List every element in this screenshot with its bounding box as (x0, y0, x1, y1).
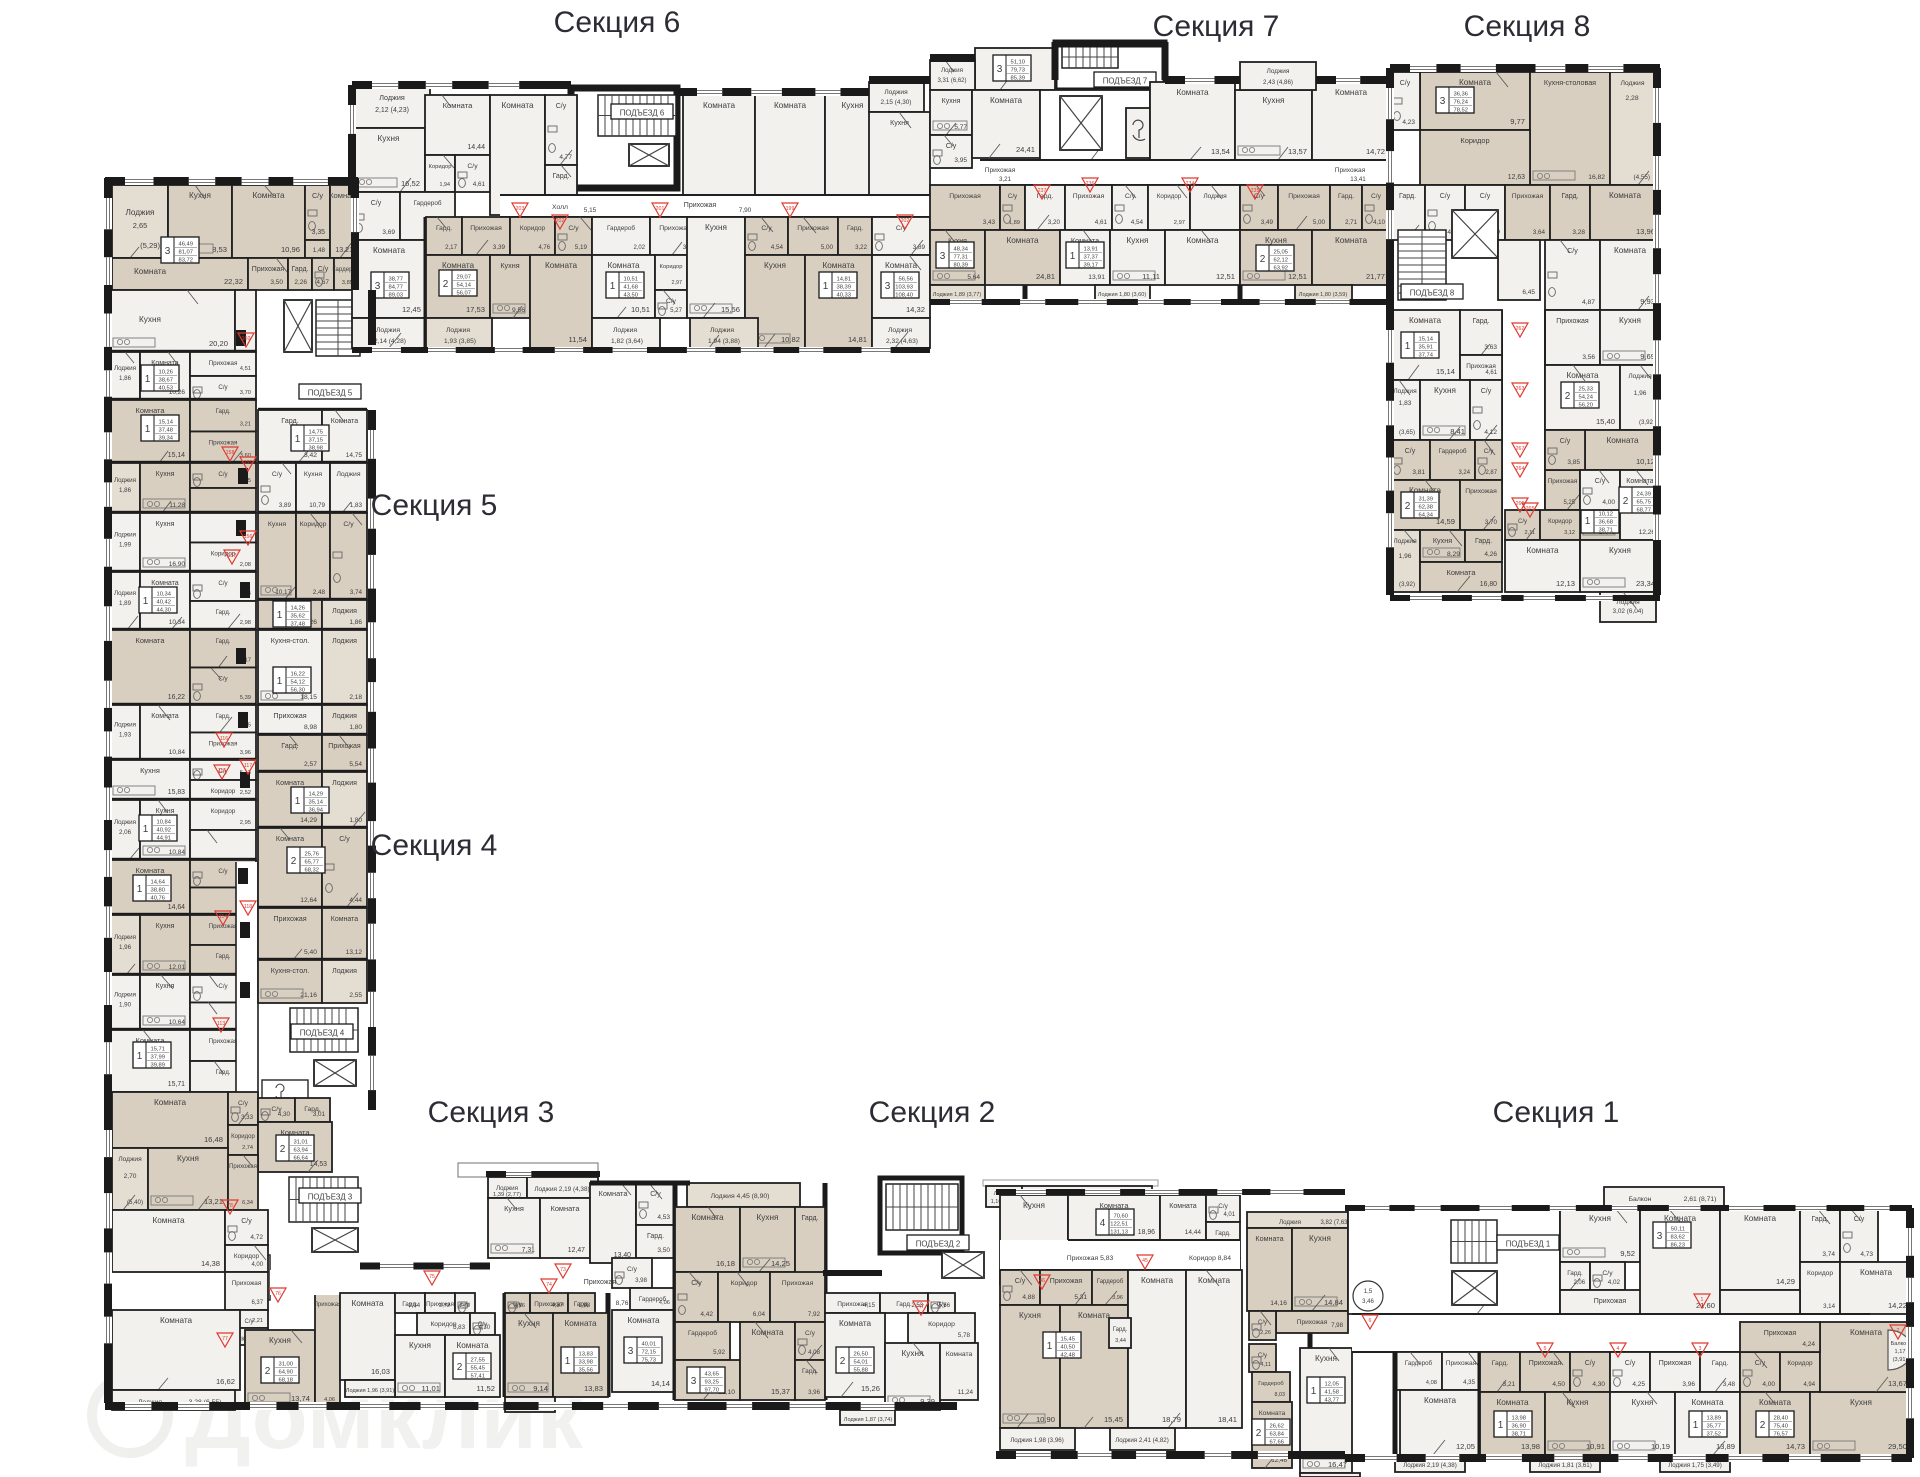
svg-text:76,57: 76,57 (1773, 1432, 1788, 1438)
svg-text:1: 1 (565, 1356, 571, 1367)
svg-text:Комната: Комната (1447, 568, 1477, 577)
svg-text:С/у: С/у (568, 225, 579, 232)
svg-text:Комната: Комната (990, 96, 1023, 105)
svg-text:24,39: 24,39 (1636, 492, 1651, 498)
svg-text:41,68: 41,68 (623, 285, 638, 291)
svg-text:13,91: 13,91 (1088, 274, 1105, 281)
svg-text:Прихожая: Прихожая (1764, 1330, 1797, 1337)
svg-text:56,56: 56,56 (898, 277, 913, 283)
svg-text:3,50: 3,50 (270, 279, 283, 286)
svg-text:16,48: 16,48 (204, 1135, 223, 1144)
svg-text:3: 3 (1699, 1346, 1702, 1352)
svg-text:С/у: С/у (666, 298, 677, 305)
svg-text:77,31: 77,31 (953, 255, 968, 261)
svg-text:Лоджия: Лоджия (376, 327, 400, 334)
svg-text:Прихожая: Прихожая (1556, 318, 1589, 325)
svg-text:Комната: Комната (599, 1189, 629, 1198)
svg-text:68,77: 68,77 (1636, 508, 1651, 514)
svg-text:40,92: 40,92 (156, 828, 171, 834)
svg-text:Коридор: Коридор (1807, 1270, 1833, 1277)
svg-text:89,03: 89,03 (388, 293, 403, 299)
svg-text:15,14: 15,14 (1436, 367, 1456, 376)
svg-text:3,39: 3,39 (493, 244, 506, 251)
svg-text:48,34: 48,34 (953, 247, 968, 253)
svg-text:Кухня: Кухня (764, 261, 786, 270)
svg-text:Комната: Комната (1614, 246, 1647, 255)
svg-text:47: 47 (918, 1304, 924, 1310)
svg-text:Гард.: Гард. (801, 1215, 818, 1222)
svg-text:(5,29): (5,29) (140, 241, 160, 250)
svg-text:Кухня: Кухня (156, 923, 175, 930)
svg-text:Комната: Комната (1759, 1398, 1792, 1407)
svg-text:Коридор: Коридор (1787, 1360, 1813, 1367)
svg-text:Холл: Холл (552, 204, 568, 211)
svg-text:35,62: 35,62 (290, 614, 305, 620)
svg-text:3,28: 3,28 (1572, 229, 1585, 236)
svg-text:1,5: 1,5 (1364, 1289, 1373, 1295)
svg-text:79,73: 79,73 (1010, 68, 1025, 74)
svg-text:234: 234 (1186, 181, 1195, 187)
svg-text:22,32: 22,32 (224, 277, 243, 286)
svg-text:73: 73 (560, 1267, 566, 1273)
svg-text:Прихожая: Прихожая (209, 1038, 238, 1045)
svg-text:7,90: 7,90 (739, 207, 752, 214)
svg-text:2: 2 (1260, 254, 1266, 265)
svg-text:36,90: 36,90 (1511, 1424, 1526, 1430)
svg-text:114: 114 (219, 914, 227, 920)
svg-text:20,20: 20,20 (209, 339, 228, 348)
svg-text:3: 3 (165, 246, 171, 257)
svg-text:6,37: 6,37 (251, 1300, 263, 1306)
svg-text:Комната: Комната (1860, 1268, 1893, 1277)
svg-text:4,54: 4,54 (1131, 219, 1144, 226)
svg-text:6: 6 (1369, 1318, 1372, 1324)
svg-text:Комната: Комната (751, 1328, 784, 1337)
svg-text:Комната: Комната (703, 101, 736, 110)
svg-text:13,74: 13,74 (291, 1394, 311, 1403)
svg-text:Кухня: Кухня (1019, 1311, 1041, 1320)
svg-text:16,82: 16,82 (1588, 174, 1605, 181)
svg-text:17,53: 17,53 (466, 305, 485, 314)
svg-text:4,23: 4,23 (1402, 119, 1415, 126)
svg-text:1: 1 (137, 1051, 143, 1062)
svg-text:2,97: 2,97 (1174, 220, 1185, 226)
svg-text:Гардероб: Гардероб (688, 1329, 717, 1337)
svg-text:Прихожая: Прихожая (782, 1280, 814, 1287)
svg-text:50,11: 50,11 (1671, 1227, 1685, 1233)
svg-text:77: 77 (222, 1336, 228, 1342)
svg-text:14,64: 14,64 (150, 880, 165, 886)
svg-text:3: 3 (885, 281, 891, 292)
svg-text:40,50: 40,50 (1060, 1345, 1075, 1351)
svg-text:1: 1 (823, 281, 829, 292)
svg-text:78,52: 78,52 (1453, 108, 1468, 114)
svg-text:3,01: 3,01 (313, 1111, 326, 1118)
svg-text:Секция 7: Секция 7 (1153, 10, 1280, 43)
svg-text:3,81: 3,81 (1412, 469, 1425, 476)
svg-text:2,70: 2,70 (124, 1173, 137, 1180)
svg-text:С/у: С/у (1518, 519, 1527, 525)
svg-text:5,00: 5,00 (1313, 219, 1326, 226)
svg-text:40,33: 40,33 (836, 293, 851, 299)
svg-text:Комната: Комната (276, 834, 304, 843)
svg-text:4,88: 4,88 (1022, 1294, 1035, 1301)
svg-text:Комната: Комната (1141, 1276, 1174, 1285)
svg-text:262: 262 (1516, 326, 1525, 332)
svg-text:8,03: 8,03 (1275, 1392, 1285, 1398)
svg-text:Лоджия 1,98 (3,96): Лоджия 1,98 (3,96) (1010, 1437, 1064, 1444)
svg-text:4,51: 4,51 (240, 366, 251, 372)
svg-text:13,96: 13,96 (1636, 227, 1655, 236)
svg-text:83,72: 83,72 (178, 258, 193, 264)
svg-text:4,35: 4,35 (1463, 1379, 1476, 1386)
svg-text:24,81: 24,81 (1036, 272, 1055, 281)
svg-text:Прихожая: Прихожая (797, 225, 829, 232)
svg-text:Лоджия: Лоджия (332, 608, 357, 615)
svg-text:13,83: 13,83 (578, 1352, 593, 1358)
svg-text:3,12: 3,12 (1564, 530, 1575, 536)
svg-text:Комната: Комната (1186, 236, 1219, 245)
svg-text:Прихожая: Прихожая (1446, 1360, 1477, 1367)
svg-text:Лоджия 2,19 (4,38): Лоджия 2,19 (4,38) (534, 1186, 589, 1193)
svg-text:Гард.: Гард. (281, 416, 299, 425)
svg-text:Кухня: Кухня (1567, 1398, 1589, 1407)
svg-text:27,55: 27,55 (470, 1358, 485, 1364)
svg-text:Прихожая: Прихожая (584, 1279, 617, 1286)
svg-text:13,98: 13,98 (1521, 1442, 1540, 1451)
svg-text:1,89: 1,89 (119, 600, 132, 607)
svg-text:3,63: 3,63 (1484, 344, 1497, 351)
svg-text:Коридор: Коридор (1548, 519, 1572, 525)
svg-text:26,62: 26,62 (1269, 1424, 1284, 1430)
svg-text:Гард.: Гард. (847, 225, 863, 232)
svg-text:Секция 8: Секция 8 (1464, 10, 1591, 43)
svg-text:Гардероб: Гардероб (413, 199, 441, 207)
svg-text:3,74: 3,74 (350, 589, 363, 596)
svg-text:Гардероб: Гардероб (1258, 1381, 1284, 1387)
svg-text:4,15: 4,15 (863, 1302, 876, 1309)
svg-text:202: 202 (556, 218, 565, 224)
svg-text:54,01: 54,01 (853, 1360, 868, 1366)
svg-text:31,01: 31,01 (293, 1140, 308, 1146)
svg-text:37,48: 37,48 (158, 428, 173, 434)
svg-text:Комната: Комната (456, 1341, 489, 1350)
svg-text:263: 263 (1516, 386, 1525, 392)
svg-text:4,06: 4,06 (659, 1300, 670, 1306)
svg-text:1: 1 (295, 796, 301, 807)
svg-text:2,98: 2,98 (240, 620, 251, 626)
svg-text:Комната: Комната (151, 580, 179, 587)
svg-text:10,12: 10,12 (1598, 512, 1613, 518)
svg-text:Кухня: Кухня (842, 101, 864, 110)
svg-text:Кухня: Кухня (757, 1213, 779, 1222)
svg-text:2,43 (4,86): 2,43 (4,86) (1263, 79, 1293, 86)
svg-text:2: 2 (840, 1356, 846, 1367)
svg-text:2,87: 2,87 (1485, 470, 1497, 476)
svg-text:Лоджия: Лоджия (888, 327, 912, 334)
svg-text:3,43: 3,43 (983, 219, 996, 226)
svg-text:1,96: 1,96 (1634, 390, 1647, 397)
svg-text:199: 199 (786, 206, 795, 212)
svg-text:Прихожая: Прихожая (1529, 1360, 1562, 1367)
svg-text:13,57: 13,57 (1288, 147, 1307, 156)
svg-text:4,42: 4,42 (700, 1311, 713, 1318)
svg-text:36,68: 36,68 (1598, 520, 1613, 526)
svg-text:Комната: Комната (276, 778, 304, 787)
svg-text:ПОДЪЕЗД 4: ПОДЪЕЗД 4 (300, 1029, 345, 1038)
svg-text:39,34: 39,34 (158, 436, 173, 442)
svg-text:15,71: 15,71 (150, 1047, 165, 1053)
svg-text:15,71: 15,71 (168, 1081, 185, 1088)
svg-text:С/у: С/у (218, 384, 228, 391)
svg-text:4,72: 4,72 (250, 1234, 263, 1241)
svg-text:4,67: 4,67 (316, 279, 329, 286)
svg-text:10,96: 10,96 (281, 245, 300, 254)
svg-text:2: 2 (1897, 1328, 1900, 1334)
svg-text:10,51: 10,51 (631, 305, 650, 314)
svg-text:13,41: 13,41 (1350, 176, 1366, 183)
svg-text:36,94: 36,94 (308, 808, 323, 814)
svg-text:2,48: 2,48 (313, 589, 326, 596)
svg-text:4,11: 4,11 (1260, 1362, 1271, 1368)
svg-text:Прихожая: Прихожая (273, 711, 306, 720)
svg-text:76: 76 (275, 1291, 281, 1297)
svg-text:Коридор: Коридор (1460, 136, 1489, 145)
svg-text:Прихожая: Прихожая (985, 167, 1016, 174)
svg-text:7,92: 7,92 (808, 1311, 821, 1318)
svg-text:С/у: С/у (1755, 1360, 1766, 1367)
svg-text:4,26: 4,26 (1484, 551, 1497, 558)
svg-text:С/у: С/у (1258, 1352, 1268, 1359)
svg-text:38,80: 38,80 (150, 888, 165, 894)
svg-text:67,66: 67,66 (1269, 1440, 1284, 1446)
svg-text:81,07: 81,07 (178, 250, 193, 256)
svg-text:43,65: 43,65 (704, 1372, 719, 1378)
svg-text:10,34: 10,34 (156, 592, 171, 598)
svg-text:Прихожая: Прихожая (1512, 193, 1544, 200)
svg-text:80,39: 80,39 (953, 263, 968, 269)
svg-text:4,37: 4,37 (551, 1303, 563, 1309)
svg-text:264: 264 (1516, 466, 1525, 472)
svg-text:Комната: Комната (1255, 1234, 1283, 1243)
svg-text:Коридор: Коридор (1157, 193, 1182, 200)
svg-text:72,15: 72,15 (641, 1350, 656, 1356)
svg-text:14,38: 14,38 (201, 1259, 220, 1268)
svg-text:Комната: Комната (1335, 88, 1368, 97)
svg-text:4,10: 4,10 (1373, 219, 1386, 226)
svg-text:267: 267 (1516, 446, 1525, 452)
svg-text:14,81: 14,81 (836, 277, 851, 283)
svg-text:7,98: 7,98 (1331, 1322, 1344, 1329)
svg-text:3,95: 3,95 (954, 157, 967, 164)
svg-text:116: 116 (220, 736, 228, 742)
svg-text:4,24: 4,24 (1802, 1341, 1815, 1348)
svg-text:2,15 (4,30): 2,15 (4,30) (881, 99, 912, 106)
svg-text:2,61 (8,71): 2,61 (8,71) (1684, 1196, 1717, 1203)
svg-text:Коридор: Коридор (520, 225, 546, 232)
svg-text:Лоджия: Лоджия (379, 93, 405, 102)
svg-text:3,96: 3,96 (1682, 1381, 1695, 1388)
svg-text:Кухня: Кухня (1632, 1398, 1654, 1407)
svg-text:Коридор: Коридор (231, 1134, 255, 1140)
svg-text:13,89: 13,89 (1716, 1442, 1735, 1451)
svg-text:Прихожая: Прихожая (252, 266, 285, 273)
svg-text:1,48: 1,48 (313, 247, 326, 254)
svg-text:Гард.: Гард. (1338, 193, 1354, 200)
svg-text:40,42: 40,42 (156, 600, 171, 606)
svg-text:16,03: 16,03 (371, 1367, 390, 1376)
svg-text:45: 45 (1142, 1258, 1148, 1264)
svg-text:1,17: 1,17 (1895, 1349, 1906, 1355)
svg-text:3,20: 3,20 (1048, 219, 1061, 226)
svg-text:1,39 (2,77): 1,39 (2,77) (493, 1192, 521, 1198)
svg-text:3: 3 (691, 1376, 697, 1387)
svg-text:Кухня: Кухня (1315, 1354, 1337, 1363)
svg-text:С/у: С/у (1481, 388, 1492, 395)
svg-text:15,40: 15,40 (1596, 417, 1615, 426)
svg-text:84,77: 84,77 (388, 285, 403, 291)
svg-text:117: 117 (244, 763, 252, 769)
svg-text:Кухня: Кухня (1309, 1234, 1331, 1243)
svg-text:Прихожая: Прихожая (1548, 478, 1578, 485)
svg-text:Кухня: Кухня (156, 983, 175, 990)
svg-text:15,14: 15,14 (1418, 337, 1433, 343)
svg-text:35,14: 35,14 (308, 800, 323, 806)
svg-text:Кухня: Кухня (378, 134, 400, 143)
svg-text:Секция 3: Секция 3 (428, 1096, 555, 1129)
svg-text:1: 1 (1693, 1420, 1699, 1431)
svg-text:66,64: 66,64 (293, 1156, 308, 1162)
svg-text:3,21: 3,21 (240, 422, 251, 428)
svg-text:68,18: 68,18 (278, 1378, 293, 1384)
svg-text:6,34: 6,34 (242, 1200, 253, 1206)
svg-text:12,05: 12,05 (1324, 1382, 1339, 1388)
svg-text:1,90: 1,90 (119, 1002, 132, 1009)
svg-text:Секция 4: Секция 4 (371, 829, 498, 862)
svg-text:Лоджия: Лоджия (114, 532, 136, 539)
svg-text:1,86: 1,86 (349, 619, 362, 626)
svg-text:3,89: 3,89 (279, 502, 292, 509)
svg-text:37,48: 37,48 (290, 622, 305, 628)
svg-text:4,61: 4,61 (1485, 370, 1497, 376)
svg-text:Комната: Комната (154, 1098, 187, 1107)
svg-text:11,24: 11,24 (958, 1389, 974, 1396)
svg-text:5,19: 5,19 (575, 244, 588, 251)
svg-text:54,24: 54,24 (1578, 395, 1593, 401)
svg-text:2,72: 2,72 (439, 1303, 450, 1309)
svg-text:С/у: С/у (1400, 80, 1411, 87)
svg-text:3,33: 3,33 (241, 1114, 254, 1121)
svg-text:Комната: Комната (1335, 236, 1368, 245)
svg-text:57,41: 57,41 (470, 1374, 485, 1380)
svg-text:Лоджия: Лоджия (446, 327, 470, 334)
svg-text:2,18: 2,18 (349, 694, 362, 701)
svg-text:С/у: С/у (241, 1218, 252, 1225)
svg-text:4,30: 4,30 (278, 1111, 291, 1118)
svg-text:3,56: 3,56 (1582, 354, 1595, 361)
svg-text:44,30: 44,30 (156, 608, 171, 614)
svg-text:Лоджия: Лоджия (332, 968, 357, 975)
svg-text:10,12: 10,12 (1636, 457, 1655, 466)
svg-text:12,63: 12,63 (1508, 174, 1525, 181)
svg-text:3,96: 3,96 (808, 1389, 821, 1396)
svg-text:С/у: С/у (650, 1191, 661, 1198)
svg-text:8,53: 8,53 (212, 245, 227, 254)
svg-text:2,02: 2,02 (633, 245, 645, 251)
svg-text:39,89: 39,89 (150, 1063, 165, 1069)
svg-text:3,24: 3,24 (1458, 470, 1470, 476)
svg-text:С/у: С/у (556, 103, 567, 110)
svg-text:10,84: 10,84 (169, 749, 186, 756)
svg-text:3,85: 3,85 (1567, 459, 1580, 466)
svg-text:10,51: 10,51 (623, 277, 638, 283)
svg-text:Кухня: Кухня (268, 521, 287, 528)
svg-text:131,13: 131,13 (1110, 1230, 1128, 1236)
svg-text:1: 1 (1047, 1341, 1053, 1352)
svg-text:ПОДЪЕЗД 6: ПОДЪЕЗД 6 (620, 109, 664, 118)
svg-text:14,73: 14,73 (1786, 1442, 1805, 1451)
svg-text:С/у: С/у (1567, 246, 1578, 255)
svg-text:2: 2 (1256, 1428, 1262, 1439)
svg-text:2,12 (4,23): 2,12 (4,23) (375, 107, 409, 114)
svg-text:Кухня: Кухня (1265, 236, 1287, 245)
svg-text:37,74: 37,74 (1418, 353, 1433, 359)
svg-text:10,84: 10,84 (156, 820, 171, 826)
svg-text:2,32 (4,63): 2,32 (4,63) (886, 338, 918, 345)
svg-text:Кухня: Кухня (156, 521, 175, 528)
svg-text:Кухня: Кухня (1127, 236, 1149, 245)
svg-text:Комната: Комната (160, 1316, 193, 1325)
svg-text:Прихожая: Прихожая (1659, 1360, 1692, 1367)
svg-text:11,54: 11,54 (569, 335, 588, 344)
svg-text:5,40: 5,40 (304, 949, 317, 956)
svg-text:ПОДЪЕЗД 2: ПОДЪЕЗД 2 (916, 1240, 960, 1249)
svg-text:Кухня: Кухня (1609, 546, 1631, 555)
svg-text:Кухня: Кухня (177, 1154, 199, 1163)
svg-text:С/у: С/у (1371, 193, 1382, 200)
svg-text:2: 2 (1565, 391, 1571, 402)
svg-text:1,94: 1,94 (440, 182, 450, 188)
svg-text:2: 2 (1405, 501, 1411, 512)
svg-text:1,86: 1,86 (119, 487, 132, 494)
svg-text:40,53: 40,53 (158, 386, 173, 392)
svg-text:Лоджия: Лоджия (125, 208, 154, 217)
svg-text:78: 78 (227, 1203, 233, 1209)
svg-text:14,75: 14,75 (346, 452, 363, 459)
svg-text:2,17: 2,17 (445, 244, 458, 251)
svg-text:Прихожая: Прихожая (1335, 167, 1366, 174)
svg-text:Комната: Комната (501, 101, 534, 110)
svg-text:1: 1 (295, 434, 301, 445)
svg-text:1,93 (3,85): 1,93 (3,85) (444, 338, 476, 345)
svg-text:Лоджия: Лоджия (1620, 80, 1644, 87)
svg-text:С/у: С/у (1585, 1360, 1596, 1367)
svg-text:75,40: 75,40 (1773, 1424, 1788, 1430)
svg-text:13,89: 13,89 (1706, 1416, 1721, 1422)
svg-text:113: 113 (217, 1021, 225, 1027)
svg-text:ПОДЪЕЗД 3: ПОДЪЕЗД 3 (308, 1193, 352, 1202)
svg-text:35,56: 35,56 (578, 1368, 593, 1374)
svg-text:26,50: 26,50 (853, 1352, 868, 1358)
svg-text:14,26: 14,26 (290, 606, 305, 612)
svg-text:Комната: Комната (1606, 436, 1639, 445)
svg-text:31,00: 31,00 (278, 1362, 293, 1368)
svg-text:4,25: 4,25 (1632, 1381, 1645, 1388)
svg-text:Гард.: Гард. (1215, 1230, 1231, 1237)
svg-text:14,75: 14,75 (308, 430, 323, 436)
svg-text:Кухня: Кухня (409, 1341, 431, 1350)
svg-text:12,05: 12,05 (1456, 1442, 1475, 1451)
